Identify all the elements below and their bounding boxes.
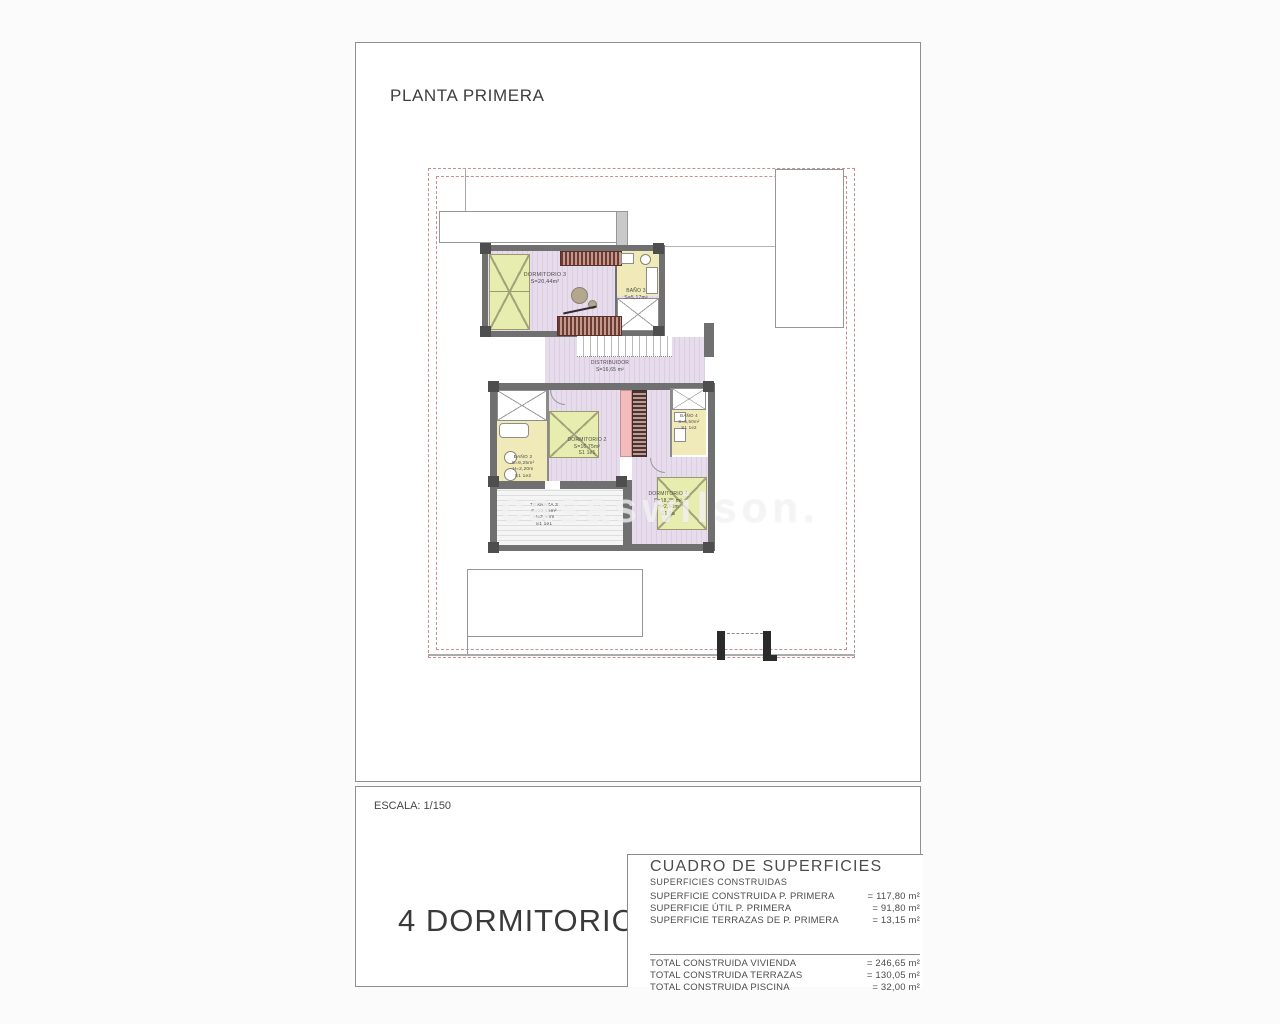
table-row: TOTAL CONSTRUIDA TERRAZAS = 130,05 m² xyxy=(650,970,920,982)
table-row: SUPERFICIE TERRAZAS DE P. PRIMERA = 13,1… xyxy=(650,915,920,927)
bathtub xyxy=(499,423,529,438)
site-line xyxy=(465,169,466,211)
table-row: TOTAL CONSTRUIDA PISCINA = 32,00 m² xyxy=(650,982,920,994)
wardrobe-dormitorio2 xyxy=(497,390,547,421)
table-round xyxy=(571,287,588,304)
bed-dormitorio3 xyxy=(489,254,530,330)
wardrobe xyxy=(560,251,622,266)
room-label-bano2: BAÑO 2S=9,25m²H=2,20mS1 1e2 xyxy=(500,455,546,480)
wall-pillar xyxy=(480,326,491,337)
wall-pillar xyxy=(703,542,714,553)
wall-pillar xyxy=(480,243,491,254)
wardrobe xyxy=(557,316,622,336)
room-label-bano3: BAÑO 3S=5,17m² xyxy=(612,288,660,301)
wall-segment xyxy=(490,545,632,551)
gate-dashed-line xyxy=(727,633,763,634)
bedrooms-count-label: 4 DORMITORIOS xyxy=(398,903,658,939)
surfaces-table: CUADRO DE SUPERFICIES SUPERFICIES CONSTR… xyxy=(627,854,923,987)
washbasin xyxy=(621,253,634,264)
neighbor-outline xyxy=(775,169,844,328)
room-label-distribuidor: DISTRIBUIDORS=16,65 m² xyxy=(575,360,645,373)
table-row: SUPERFICIE ÚTIL P. PRIMERA = 91,80 m² xyxy=(650,903,920,915)
stair-flight xyxy=(577,336,672,357)
table-row: SUPERFICIE CONSTRUIDA P. PRIMERA = 117,8… xyxy=(650,891,920,903)
room-label-dormitorio2: DORMITORIO 2S=16,75m²S1 1e1 xyxy=(556,437,618,457)
table-row: TOTAL CONSTRUIDA VIVIENDA = 246,65 m² xyxy=(650,958,920,970)
scale-label: ESCALA: 1/150 xyxy=(374,800,451,812)
wall-pillar xyxy=(488,542,499,553)
site-line xyxy=(665,246,775,247)
surfaces-table-title: CUADRO DE SUPERFICIES xyxy=(650,858,882,876)
corridor-floor xyxy=(647,390,672,457)
surfaces-table-subtitle: SUPERFICIES CONSTRUIDAS xyxy=(650,877,787,887)
wall-pillar xyxy=(653,243,664,254)
watermark: casaswilson. xyxy=(400,484,920,532)
wall-segment xyxy=(704,323,714,357)
gate-post xyxy=(717,631,725,660)
room-label-dormitorio3: DORMITORIO 3S=20,44m² xyxy=(505,272,585,286)
lower-terrace-outline xyxy=(467,569,643,637)
stair-landing xyxy=(620,390,632,457)
wall-pillar xyxy=(703,381,714,392)
room-label-bano4: BAÑO 4S=5,50m²S1 1e2 xyxy=(672,413,706,431)
page-title: PLANTA PRIMERA xyxy=(390,86,545,106)
table-divider xyxy=(650,954,920,955)
gate-post xyxy=(763,631,771,655)
bed-divider xyxy=(489,291,530,292)
roof-overhang-outline xyxy=(439,211,625,243)
wall-pillar xyxy=(488,381,499,392)
plot-bottom-line xyxy=(428,654,855,656)
gate-post-foot xyxy=(763,655,777,661)
wardrobe-dormitorio4 xyxy=(672,388,706,410)
toilet xyxy=(640,254,651,265)
